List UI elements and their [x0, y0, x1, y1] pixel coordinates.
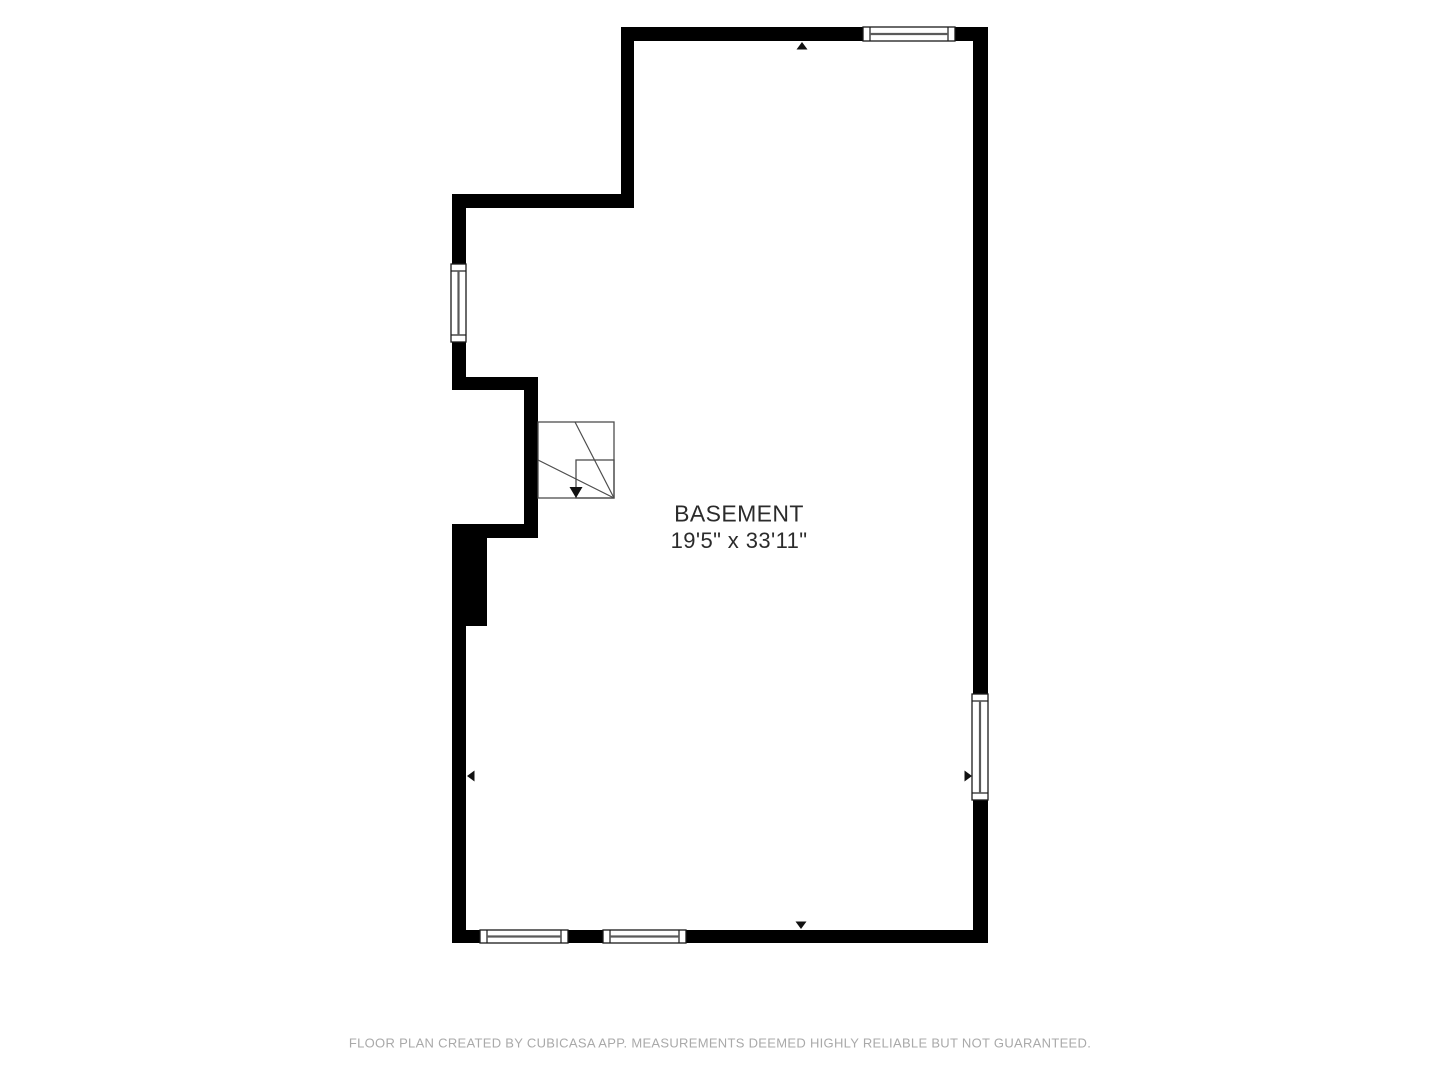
footer-disclaimer: FLOOR PLAN CREATED BY CUBICASA APP. MEAS… — [349, 1036, 1091, 1051]
wall-arrow-marker-up — [797, 42, 808, 50]
stairs-inner-step — [576, 460, 614, 498]
wall-segment-nib-vertical-wall — [524, 377, 538, 538]
wall-arrow-marker-right — [965, 771, 973, 782]
wall-arrow-marker-down — [796, 922, 807, 930]
floorplan-page: BASEMENT 19'5" x 33'11" FLOOR PLAN CREAT… — [0, 0, 1440, 1080]
wall-arrow-marker-left — [467, 771, 475, 782]
wall-segment-left-wall-lower — [452, 626, 466, 943]
wall-segment-upper-horizontal-wall — [452, 194, 634, 208]
wall-segment-right-wall — [973, 27, 988, 943]
wall-segment-thick-left-wall — [452, 524, 487, 626]
stairs-down-arrow-icon — [570, 487, 583, 498]
room-label: BASEMENT — [674, 501, 804, 528]
wall-segment-upper-left-wall — [621, 27, 634, 208]
room-dimensions: 19'5" x 33'11" — [671, 528, 808, 554]
